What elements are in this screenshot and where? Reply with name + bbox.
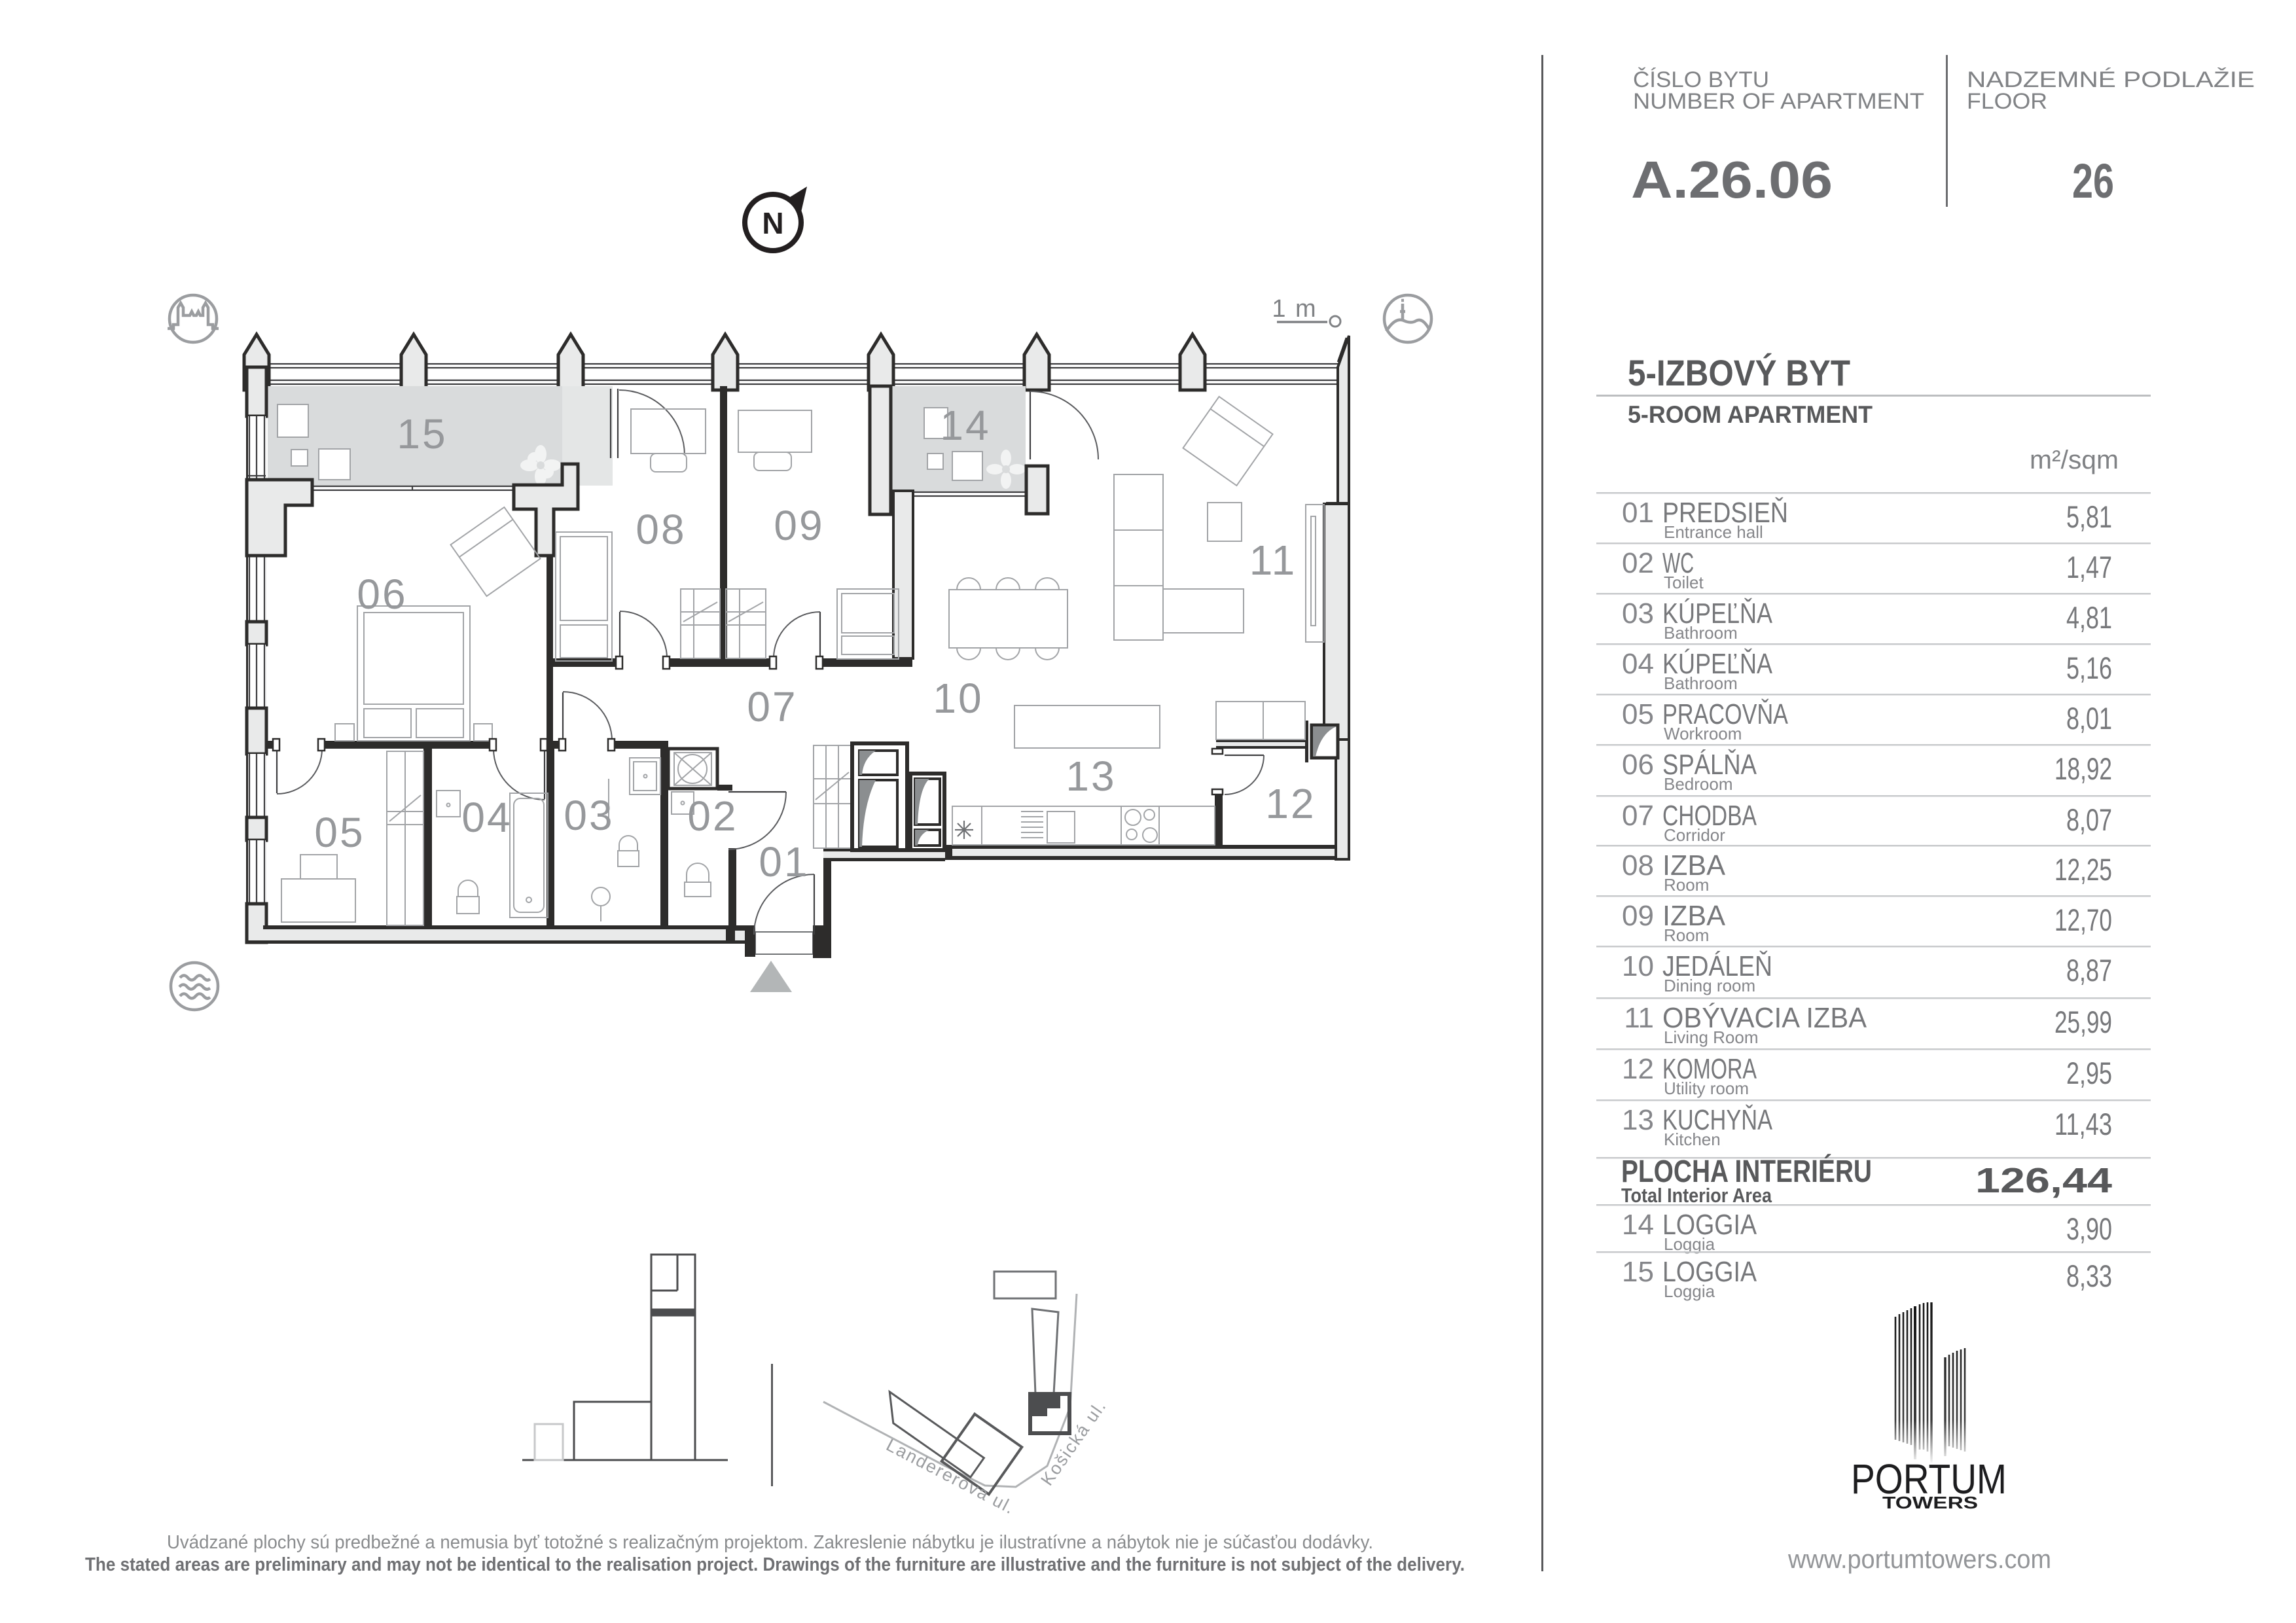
svg-text:NUMBER OF APARTMENT: NUMBER OF APARTMENT — [1633, 89, 1924, 114]
svg-text:10: 10 — [1622, 950, 1654, 982]
svg-text:09: 09 — [1622, 900, 1654, 932]
svg-text:11: 11 — [1249, 537, 1297, 584]
svg-text:15: 15 — [397, 410, 447, 457]
svg-text:01: 01 — [1622, 497, 1654, 529]
svg-text:Room: Room — [1664, 875, 1709, 895]
svg-text:1,47: 1,47 — [2066, 550, 2112, 584]
svg-text:A.26.06: A.26.06 — [1631, 151, 1833, 209]
svg-text:25,99: 25,99 — [2054, 1005, 2112, 1039]
svg-text:Living Room: Living Room — [1664, 1027, 1759, 1047]
svg-text:4,81: 4,81 — [2066, 600, 2112, 635]
svg-text:TOWERS: TOWERS — [1882, 1493, 1978, 1512]
svg-text:14: 14 — [1622, 1209, 1654, 1241]
svg-text:N: N — [762, 206, 783, 240]
svg-text:Košická ul.: Košická ul. — [1037, 1396, 1110, 1489]
svg-text:07: 07 — [1622, 800, 1654, 832]
svg-text:05: 05 — [314, 809, 365, 856]
svg-text:8,07: 8,07 — [2066, 802, 2112, 837]
svg-text:12: 12 — [1265, 780, 1316, 827]
svg-text:06: 06 — [1622, 749, 1654, 781]
svg-text:10: 10 — [933, 675, 983, 722]
svg-text:07: 07 — [747, 683, 797, 730]
svg-text:08: 08 — [1622, 849, 1654, 882]
svg-text:5,81: 5,81 — [2066, 499, 2112, 534]
svg-text:04: 04 — [1622, 648, 1654, 680]
svg-text:09: 09 — [774, 502, 824, 549]
svg-text:06: 06 — [357, 571, 407, 618]
svg-text:08: 08 — [636, 506, 686, 553]
svg-text:www.portumtowers.com: www.portumtowers.com — [1787, 1545, 2051, 1574]
svg-text:Total Interior Area: Total Interior Area — [1621, 1184, 1772, 1207]
svg-text:1 m: 1 m — [1272, 295, 1317, 323]
svg-text:13: 13 — [1622, 1104, 1654, 1136]
svg-text:Loggia: Loggia — [1664, 1234, 1715, 1254]
svg-text:2,95: 2,95 — [2066, 1056, 2112, 1090]
svg-text:15: 15 — [1622, 1256, 1654, 1288]
svg-text:03: 03 — [1622, 597, 1654, 630]
svg-text:5,16: 5,16 — [2066, 651, 2112, 685]
svg-text:FLOOR: FLOOR — [1967, 89, 2047, 114]
svg-text:Bathroom: Bathroom — [1664, 673, 1738, 693]
svg-text:01: 01 — [759, 838, 809, 885]
svg-text:The stated areas are prelimina: The stated areas are preliminary and may… — [85, 1554, 1465, 1575]
svg-text:12,25: 12,25 — [2054, 852, 2112, 887]
svg-text:5-ROOM APARTMENT: 5-ROOM APARTMENT — [1628, 401, 1873, 428]
svg-text:3,90: 3,90 — [2066, 1211, 2112, 1246]
svg-text:13: 13 — [1066, 753, 1116, 800]
svg-text:18,92: 18,92 — [2054, 751, 2112, 786]
svg-text:Workroom: Workroom — [1664, 724, 1742, 743]
svg-text:5-IZBOVÝ BYT: 5-IZBOVÝ BYT — [1628, 352, 1850, 393]
svg-text:8,01: 8,01 — [2066, 701, 2112, 736]
svg-text:11,43: 11,43 — [2054, 1107, 2112, 1141]
svg-text:12: 12 — [1622, 1053, 1654, 1085]
svg-text:02: 02 — [687, 793, 738, 840]
svg-text:12,70: 12,70 — [2054, 902, 2112, 937]
svg-text:Room: Room — [1664, 925, 1709, 945]
svg-text:04: 04 — [461, 794, 512, 841]
svg-text:Uvádzané plochy sú predbežné a: Uvádzané plochy sú predbežné a nemusia b… — [167, 1532, 1373, 1553]
svg-text:Toilet: Toilet — [1664, 573, 1704, 592]
svg-text:Utility room: Utility room — [1664, 1079, 1749, 1098]
svg-text:8,33: 8,33 — [2066, 1258, 2112, 1293]
svg-text:m²/sqm: m²/sqm — [2030, 446, 2119, 474]
svg-text:Kitchen: Kitchen — [1664, 1130, 1721, 1149]
svg-text:Loggia: Loggia — [1664, 1281, 1715, 1301]
svg-text:8,87: 8,87 — [2066, 953, 2112, 988]
svg-text:Dining room: Dining room — [1664, 976, 1755, 995]
svg-text:02: 02 — [1622, 547, 1654, 579]
svg-text:03: 03 — [564, 792, 614, 839]
svg-text:14: 14 — [940, 402, 990, 449]
svg-text:05: 05 — [1622, 698, 1654, 730]
svg-text:11: 11 — [1624, 1002, 1654, 1034]
svg-text:Bedroom: Bedroom — [1664, 774, 1733, 794]
svg-text:126,44: 126,44 — [1975, 1161, 2112, 1200]
svg-text:Entrance hall: Entrance hall — [1664, 522, 1763, 542]
svg-text:Corridor: Corridor — [1664, 825, 1725, 845]
svg-text:26: 26 — [2072, 154, 2114, 208]
svg-text:Bathroom: Bathroom — [1664, 623, 1738, 643]
